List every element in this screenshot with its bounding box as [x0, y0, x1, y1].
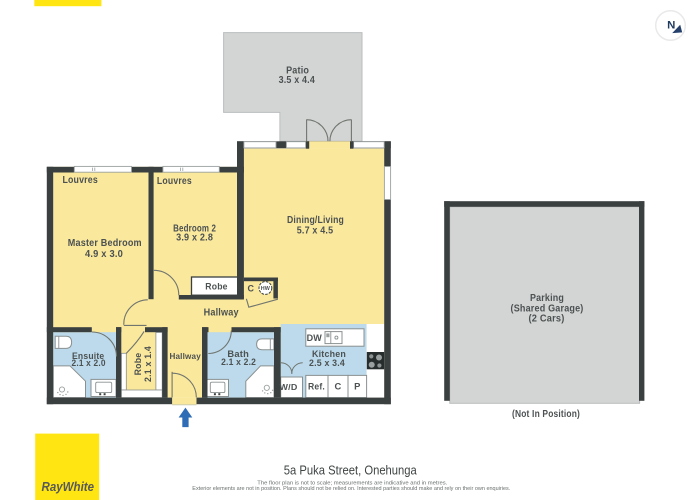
svg-text:P: P: [354, 381, 360, 392]
svg-text:DW: DW: [307, 332, 322, 343]
svg-text:Robe: Robe: [133, 353, 143, 376]
svg-text:5.7 x 4.5: 5.7 x 4.5: [297, 225, 334, 236]
svg-text:3.9 x 2.8: 3.9 x 2.8: [176, 233, 213, 244]
svg-text:Louvres: Louvres: [157, 176, 192, 187]
svg-text:W/D: W/D: [280, 382, 298, 392]
svg-text:2.1 x 2.0: 2.1 x 2.0: [72, 358, 106, 368]
svg-text:C: C: [247, 284, 254, 294]
svg-text:5a Puka Street, Onehunga: 5a Puka Street, Onehunga: [284, 462, 418, 477]
svg-text:2.1 x 1.4: 2.1 x 1.4: [143, 346, 153, 382]
svg-text:HW: HW: [261, 286, 271, 292]
svg-text:2.1 x 2.2: 2.1 x 2.2: [221, 357, 256, 367]
svg-text:Louvres: Louvres: [62, 175, 98, 186]
svg-text:3.5 x 4.4: 3.5 x 4.4: [279, 75, 316, 86]
svg-text:Ref.: Ref.: [308, 381, 325, 392]
svg-text:RayWhite: RayWhite: [42, 480, 95, 494]
svg-text:Master Bedroom: Master Bedroom: [68, 238, 142, 249]
svg-text:4.9 x 3.0: 4.9 x 3.0: [85, 249, 123, 260]
svg-text:2.5 x 3.4: 2.5 x 3.4: [309, 358, 345, 368]
svg-text:Exterior elements are not in p: Exterior elements are not in position. P…: [192, 486, 510, 492]
svg-text:Robe: Robe: [205, 281, 227, 292]
svg-text:Hallway: Hallway: [204, 308, 239, 319]
svg-text:(Not In Position): (Not In Position): [512, 409, 580, 420]
svg-text:Hallway: Hallway: [169, 352, 201, 361]
svg-text:C: C: [335, 381, 342, 392]
svg-text:(2 Cars): (2 Cars): [529, 314, 565, 325]
svg-text:N: N: [667, 20, 675, 32]
